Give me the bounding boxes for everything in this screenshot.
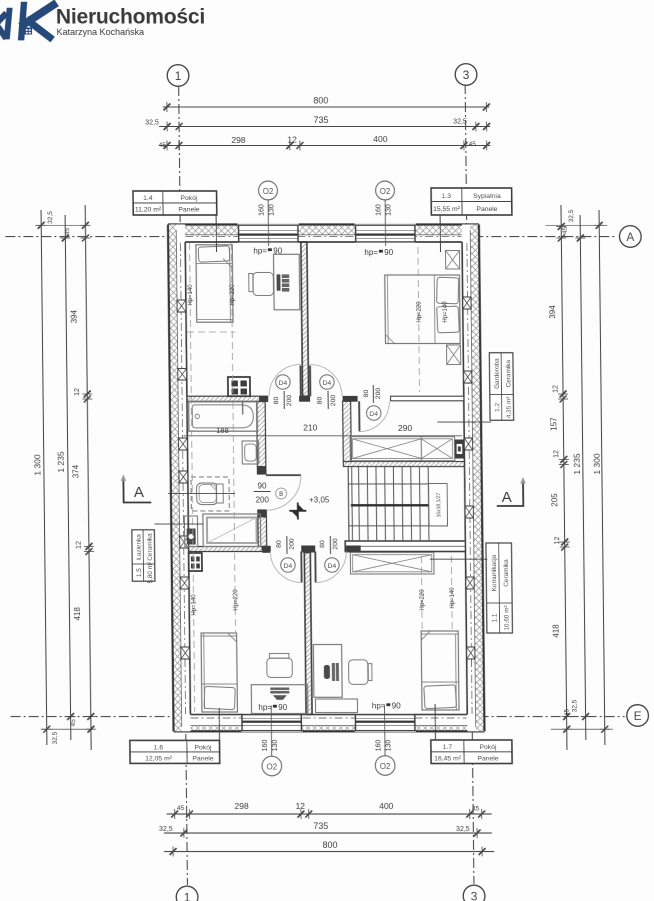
- svg-text:12: 12: [295, 801, 305, 811]
- svg-text:1: 1: [175, 69, 182, 83]
- svg-text:130: 130: [272, 740, 279, 752]
- svg-text:1.4: 1.4: [143, 195, 153, 202]
- svg-text:1.1: 1.1: [491, 613, 498, 622]
- svg-text:Panele: Panele: [178, 207, 199, 214]
- svg-text:12: 12: [553, 450, 560, 458]
- svg-text:32,5: 32,5: [145, 120, 159, 127]
- svg-text:3: 3: [471, 890, 478, 901]
- svg-text:A: A: [134, 484, 144, 501]
- svg-text:12: 12: [76, 541, 83, 549]
- svg-text:Komunikacja: Komunikacja: [491, 554, 498, 591]
- svg-text:200: 200: [375, 388, 382, 400]
- svg-text:Hp=220: Hp=220: [420, 589, 426, 611]
- svg-text:1 300: 1 300: [32, 454, 42, 476]
- svg-text:Katarzyna Kochańska: Katarzyna Kochańska: [57, 27, 145, 37]
- svg-text:298: 298: [234, 801, 249, 811]
- svg-text:735: 735: [313, 115, 328, 125]
- svg-text:45: 45: [469, 141, 477, 148]
- svg-text:1.7: 1.7: [443, 744, 453, 751]
- svg-text:hp=: hp=: [258, 703, 272, 712]
- svg-text:45: 45: [64, 228, 71, 236]
- svg-text:Hp=140: Hp=140: [450, 587, 456, 609]
- svg-text:200: 200: [286, 395, 293, 407]
- svg-text:130: 130: [385, 204, 392, 216]
- svg-text:80: 80: [319, 540, 326, 548]
- svg-text:45: 45: [159, 142, 167, 149]
- svg-text:290: 290: [398, 423, 413, 433]
- svg-text:+3,05: +3,05: [309, 496, 330, 505]
- svg-text:205: 205: [550, 493, 559, 507]
- svg-text:157: 157: [549, 417, 558, 431]
- svg-text:32,5: 32,5: [571, 699, 578, 712]
- svg-text:45: 45: [564, 709, 571, 717]
- svg-text:1 235: 1 235: [56, 451, 66, 473]
- svg-text:394: 394: [70, 309, 79, 323]
- svg-text:Panele: Panele: [192, 756, 213, 763]
- svg-text:80: 80: [317, 397, 324, 405]
- svg-text:Panele: Panele: [476, 206, 497, 213]
- svg-text:Hp=140: Hp=140: [188, 284, 194, 306]
- svg-text:D4: D4: [284, 563, 293, 570]
- svg-text:12: 12: [552, 385, 559, 393]
- svg-text:1.6: 1.6: [154, 744, 164, 751]
- svg-text:12: 12: [74, 388, 81, 396]
- svg-text:O2: O2: [263, 187, 274, 196]
- svg-text:Ceramika: Ceramika: [147, 533, 154, 561]
- svg-text:45: 45: [562, 227, 569, 235]
- svg-text:E: E: [634, 709, 642, 723]
- svg-text:45: 45: [177, 805, 185, 812]
- svg-text:32,5: 32,5: [568, 209, 575, 222]
- svg-text:800: 800: [322, 840, 337, 850]
- svg-text:394: 394: [548, 305, 557, 319]
- svg-text:374: 374: [72, 464, 81, 478]
- svg-text:Pokój: Pokój: [194, 744, 212, 751]
- svg-text:10,60 m²: 10,60 m²: [503, 605, 510, 630]
- svg-text:Hp=220: Hp=220: [230, 284, 236, 306]
- svg-text:1.5: 1.5: [136, 568, 143, 577]
- svg-text:200: 200: [289, 538, 296, 550]
- svg-text:45: 45: [472, 806, 480, 813]
- svg-text:32,5: 32,5: [456, 826, 470, 833]
- svg-text:1 235: 1 235: [572, 453, 582, 475]
- svg-text:Hp=220: Hp=220: [233, 589, 239, 611]
- svg-text:12: 12: [287, 135, 297, 145]
- svg-text:Pokój: Pokój: [479, 744, 497, 751]
- svg-text:1.3: 1.3: [442, 193, 452, 200]
- svg-text:160: 160: [375, 740, 382, 752]
- svg-text:O2: O2: [380, 762, 391, 771]
- svg-text:400: 400: [379, 801, 394, 811]
- svg-text:200: 200: [330, 395, 337, 407]
- svg-text:32,5: 32,5: [453, 119, 467, 126]
- svg-text:12: 12: [554, 537, 561, 545]
- svg-text:Panele: Panele: [477, 756, 498, 763]
- svg-text:735: 735: [313, 821, 328, 831]
- svg-text:Hp=140: Hp=140: [443, 301, 449, 323]
- svg-text:32,5: 32,5: [159, 826, 173, 833]
- svg-text:160: 160: [375, 204, 382, 216]
- svg-text:D4: D4: [323, 380, 332, 387]
- svg-text:188: 188: [216, 426, 229, 435]
- svg-text:D4: D4: [369, 411, 378, 418]
- svg-text:Ceramika: Ceramika: [503, 559, 510, 587]
- svg-text:298: 298: [231, 135, 246, 145]
- svg-text:160: 160: [258, 204, 265, 216]
- svg-text:1: 1: [184, 891, 191, 901]
- svg-text:A: A: [626, 230, 634, 244]
- svg-text:11,20 m²: 11,20 m²: [135, 207, 162, 214]
- svg-text:400: 400: [373, 134, 388, 144]
- svg-text:15,55 m²: 15,55 m²: [433, 206, 461, 213]
- svg-text:130: 130: [268, 204, 275, 216]
- svg-text:32,5: 32,5: [52, 731, 59, 744]
- svg-text:45: 45: [70, 719, 77, 727]
- svg-text:90: 90: [278, 703, 288, 712]
- svg-text:Łazienka: Łazienka: [136, 534, 143, 560]
- svg-text:12,05 m²: 12,05 m²: [145, 756, 173, 763]
- svg-text:160: 160: [262, 740, 269, 752]
- svg-text:80: 80: [363, 390, 370, 398]
- svg-text:D4: D4: [328, 563, 337, 570]
- svg-text:200: 200: [332, 538, 339, 550]
- svg-text:D4: D4: [279, 380, 288, 387]
- svg-text:130: 130: [385, 740, 392, 752]
- svg-text:3: 3: [463, 68, 470, 82]
- svg-text:O2: O2: [380, 187, 391, 196]
- svg-text:418: 418: [552, 624, 561, 638]
- svg-text:210: 210: [303, 423, 318, 433]
- svg-text:A: A: [502, 489, 512, 506]
- svg-text:418: 418: [73, 607, 82, 621]
- svg-text:Hp=140: Hp=140: [191, 594, 197, 616]
- svg-text:B: B: [279, 492, 283, 498]
- svg-text:32,5: 32,5: [47, 211, 54, 224]
- svg-text:Garderoba: Garderoba: [494, 358, 501, 389]
- svg-text:90: 90: [258, 482, 268, 491]
- svg-text:80: 80: [273, 397, 280, 405]
- svg-text:Ceramika: Ceramika: [505, 359, 512, 387]
- svg-text:90: 90: [384, 248, 394, 257]
- svg-text:16,45 m²: 16,45 m²: [434, 756, 462, 763]
- svg-text:Hp=220: Hp=220: [417, 301, 423, 323]
- svg-text:5,80 m²: 5,80 m²: [147, 562, 154, 584]
- svg-text:800: 800: [313, 96, 328, 106]
- svg-text:90: 90: [273, 247, 283, 256]
- svg-text:200: 200: [255, 496, 269, 505]
- svg-text:hp=: hp=: [364, 248, 378, 257]
- svg-text:Pokój: Pokój: [180, 195, 198, 202]
- svg-text:Nieruchomości: Nieruchomości: [56, 6, 205, 29]
- svg-text:16x18,1/27: 16x18,1/27: [436, 492, 442, 517]
- svg-text:90: 90: [392, 702, 402, 711]
- svg-text:1 300: 1 300: [592, 453, 602, 475]
- svg-text:hp=: hp=: [372, 702, 386, 711]
- svg-text:4,35 m²: 4,35 m²: [505, 397, 512, 419]
- svg-text:Sypialnia: Sypialnia: [473, 193, 501, 200]
- svg-text:1.2: 1.2: [494, 403, 501, 412]
- svg-text:hp=: hp=: [253, 247, 267, 256]
- svg-text:O2: O2: [266, 762, 277, 771]
- svg-text:80: 80: [276, 540, 283, 548]
